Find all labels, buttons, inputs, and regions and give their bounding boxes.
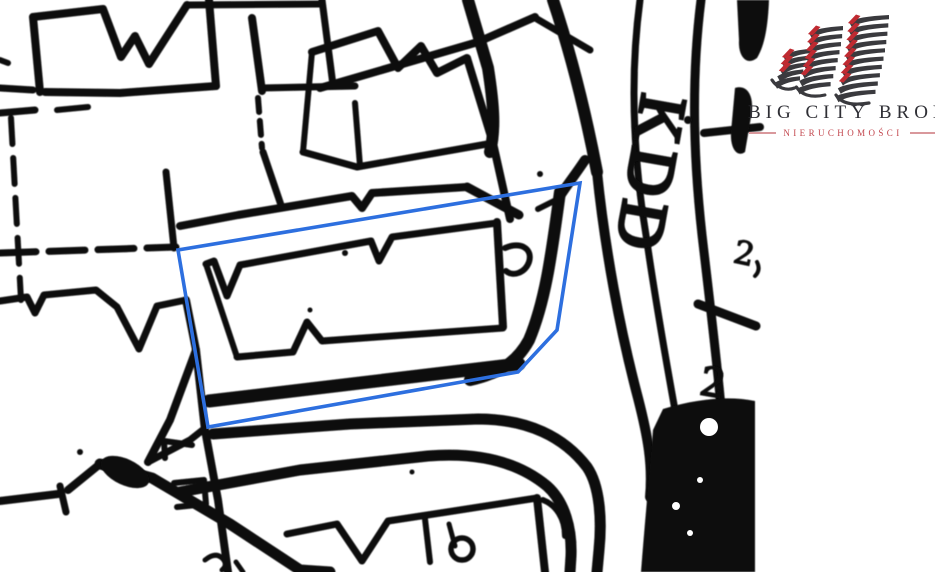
tagline-left-dash-line: [749, 132, 776, 134]
map-image: KDD 2 2: [0, 0, 935, 572]
map-stage: KDD 2 2 BIG CITY BROKER NIERUCHOMOŚCI: [0, 0, 935, 572]
tagline-right-dash-line: [910, 132, 935, 134]
brand-tagline: NIERUCHOMOŚCI: [783, 128, 902, 138]
brand-tagline-row: NIERUCHOMOŚCI: [748, 128, 935, 138]
brand-name: BIG CITY BROKER: [748, 102, 935, 124]
